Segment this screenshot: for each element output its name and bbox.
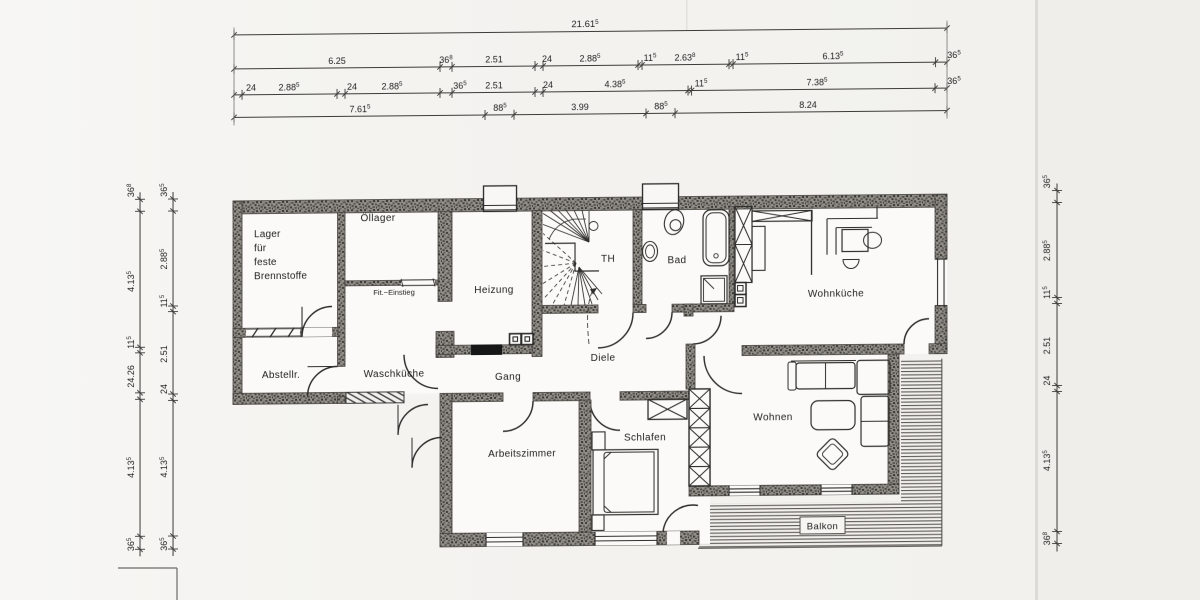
svg-text:2.51: 2.51	[485, 54, 503, 64]
svg-text:Wohnen: Wohnen	[753, 412, 792, 423]
svg-text:Fit.−Einstieg: Fit.−Einstieg	[373, 288, 414, 297]
svg-text:feste: feste	[254, 257, 277, 268]
svg-text:Abstellr.: Abstellr.	[262, 370, 300, 381]
svg-text:24: 24	[543, 80, 553, 90]
svg-text:Schlafen: Schlafen	[624, 432, 666, 443]
svg-text:2.51: 2.51	[485, 80, 503, 90]
svg-text:Öllager: Öllager	[360, 212, 395, 224]
svg-text:Lager: Lager	[254, 229, 281, 240]
svg-text:Waschküche: Waschküche	[364, 369, 425, 381]
svg-text:24.26: 24.26	[126, 365, 136, 388]
svg-text:für: für	[254, 243, 267, 254]
svg-text:Bad: Bad	[668, 255, 687, 266]
svg-text:TH: TH	[601, 254, 615, 265]
svg-text:Diele: Diele	[591, 353, 616, 364]
svg-text:24: 24	[246, 83, 256, 93]
svg-text:24: 24	[1042, 376, 1052, 386]
svg-text:21.615: 21.615	[571, 19, 599, 30]
svg-text:2.51: 2.51	[1042, 337, 1052, 355]
svg-text:6.25: 6.25	[328, 56, 346, 66]
svg-text:Gang: Gang	[495, 372, 521, 383]
svg-text:8.24: 8.24	[799, 100, 817, 110]
svg-text:24: 24	[542, 54, 552, 64]
svg-text:24: 24	[347, 82, 357, 92]
svg-text:Wohnküche: Wohnküche	[808, 288, 864, 300]
svg-text:Arbeitszimmer: Arbeitszimmer	[488, 448, 556, 460]
svg-text:2.51: 2.51	[159, 345, 169, 363]
svg-text:24: 24	[159, 384, 169, 394]
svg-text:Balkon: Balkon	[807, 521, 838, 532]
svg-text:Heizung: Heizung	[474, 285, 513, 296]
svg-text:Brennstoffe: Brennstoffe	[254, 271, 307, 283]
svg-text:3.99: 3.99	[571, 102, 589, 112]
